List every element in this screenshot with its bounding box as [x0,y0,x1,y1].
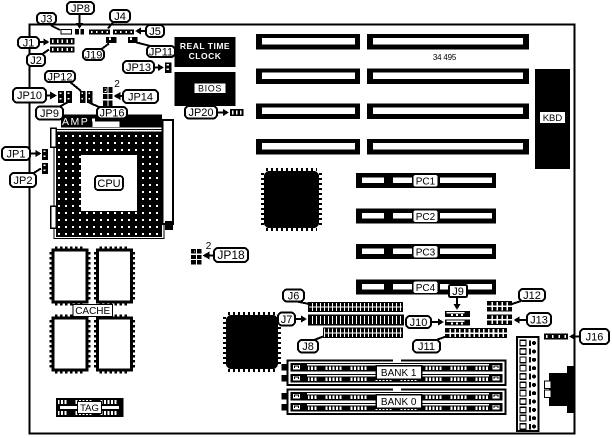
svg-text:J4: J4 [114,11,126,23]
svg-text:JP9: JP9 [40,108,59,120]
svg-text:J1: J1 [23,37,35,49]
svg-text:JP13: JP13 [126,62,151,74]
svg-text:BANK 0: BANK 0 [381,397,417,408]
svg-text:J10: J10 [410,317,428,329]
svg-text:PC1: PC1 [416,177,436,188]
svg-text:JP14: JP14 [128,91,153,103]
svg-text:JP11: JP11 [149,46,173,58]
svg-text:PC2: PC2 [416,212,436,223]
svg-text:JP1: JP1 [7,148,26,160]
svg-text:J7: J7 [281,314,293,326]
svg-text:JP20: JP20 [188,107,213,119]
svg-text:2: 2 [206,241,212,252]
svg-text:JP8: JP8 [71,3,90,15]
svg-text:J2: J2 [30,55,42,67]
svg-text:TAG: TAG [80,403,99,414]
svg-text:REAL TIME: REAL TIME [180,41,230,51]
svg-text:J6: J6 [288,290,300,302]
svg-text:PC3: PC3 [416,248,436,259]
svg-text:J8: J8 [302,341,314,353]
svg-text:JP12: JP12 [47,71,72,83]
svg-text:J13: J13 [530,314,548,326]
svg-text:JP2: JP2 [14,175,33,187]
svg-text:JP10: JP10 [17,90,42,102]
svg-text:34 495: 34 495 [433,53,457,62]
svg-text:AMP: AMP [62,116,89,128]
svg-text:J16: J16 [586,331,604,343]
svg-text:BANK 1: BANK 1 [381,368,417,379]
svg-text:J3: J3 [41,13,53,25]
svg-text:CLOCK: CLOCK [189,51,222,61]
svg-text:J5: J5 [149,26,161,38]
svg-text:CPU: CPU [97,178,120,190]
svg-text:BIOS: BIOS [198,84,222,94]
svg-text:J19: J19 [85,49,103,61]
svg-text:J11: J11 [418,341,435,353]
svg-text:KBD: KBD [543,113,563,124]
svg-text:J12: J12 [523,290,541,302]
svg-text:JP16: JP16 [99,108,124,120]
svg-text:PC4: PC4 [416,283,436,294]
svg-text:CACHE: CACHE [75,306,110,317]
svg-text:JP18: JP18 [217,248,245,262]
svg-text:J9: J9 [452,286,464,298]
svg-text:2: 2 [114,79,120,90]
